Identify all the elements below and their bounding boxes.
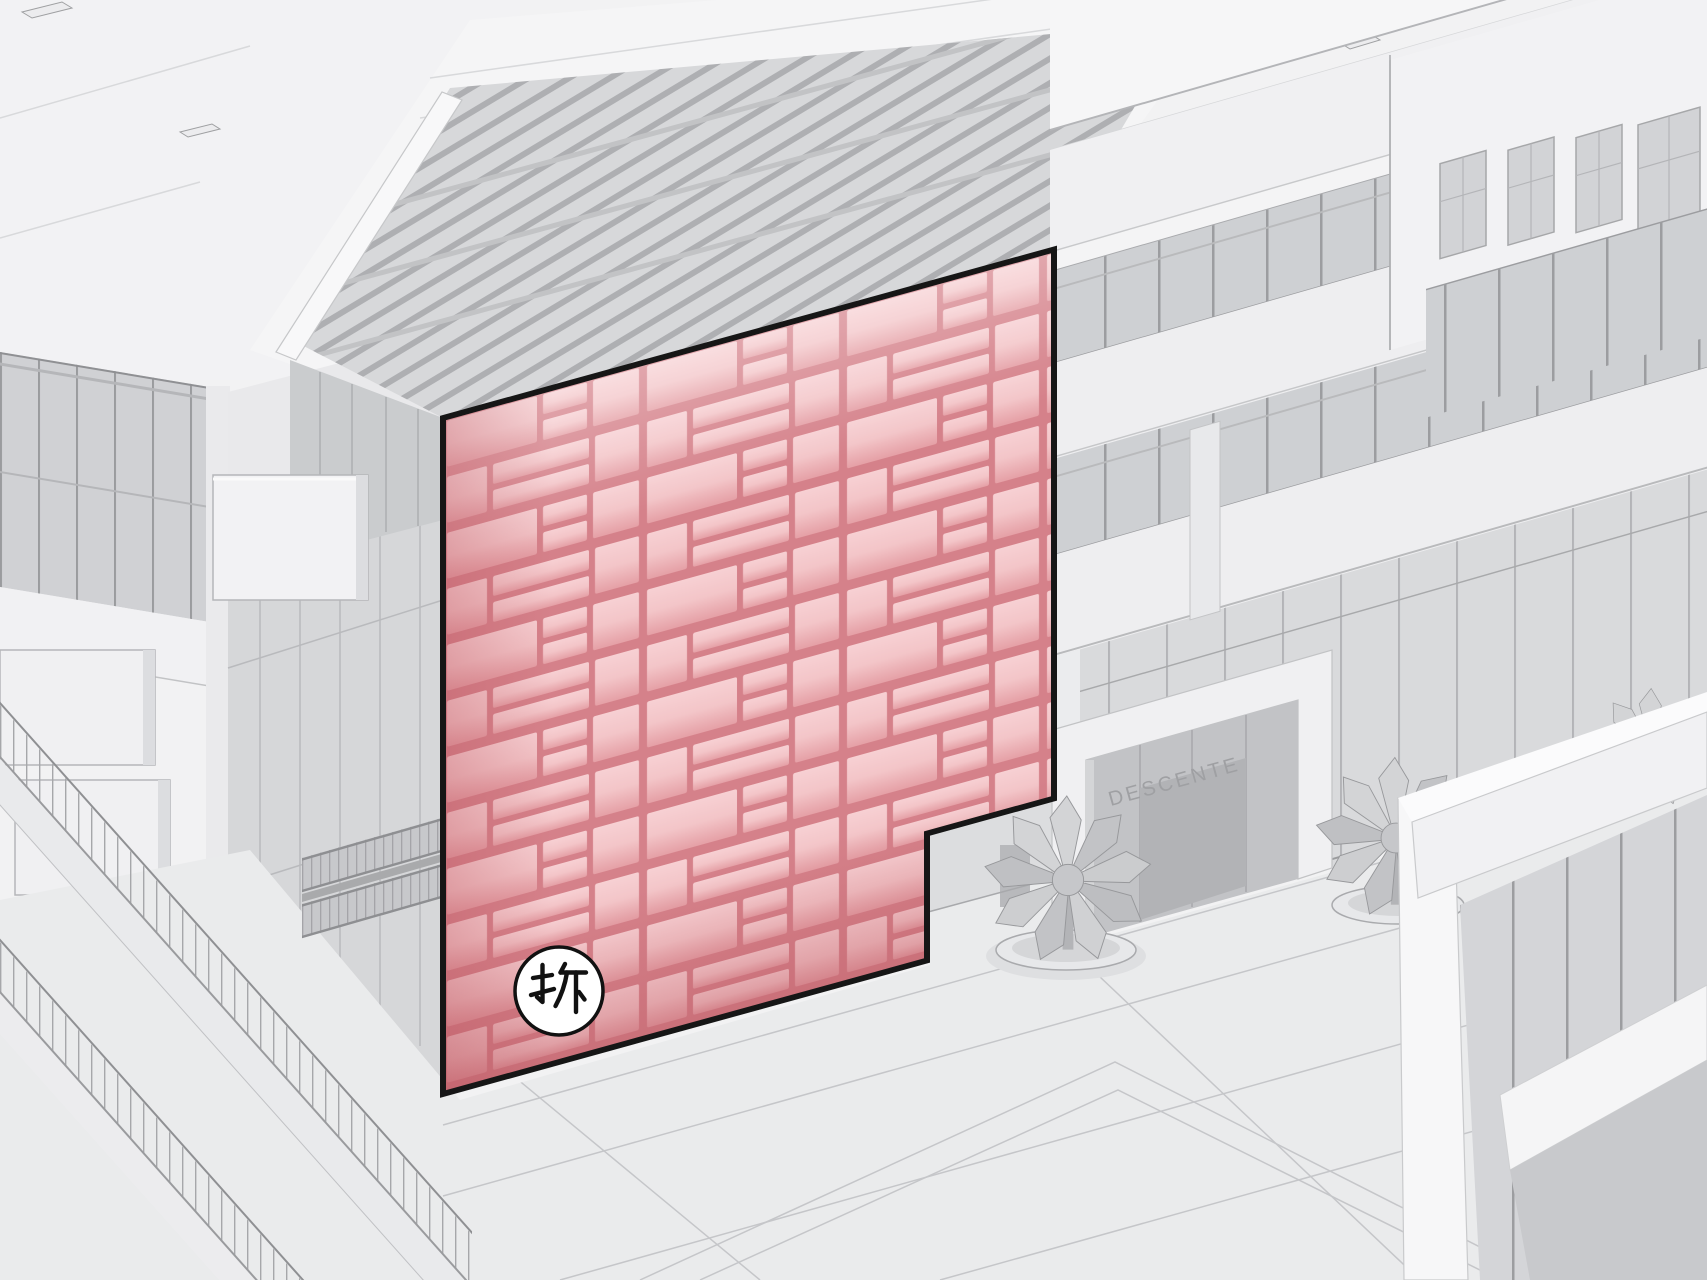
left-curtain-wall	[0, 352, 213, 687]
scene-canvas: DESCENTE	[0, 0, 1707, 1280]
demolish-badge[interactable]	[515, 947, 603, 1035]
axonometric-demolition-diagram: DESCENTE	[0, 0, 1707, 1280]
